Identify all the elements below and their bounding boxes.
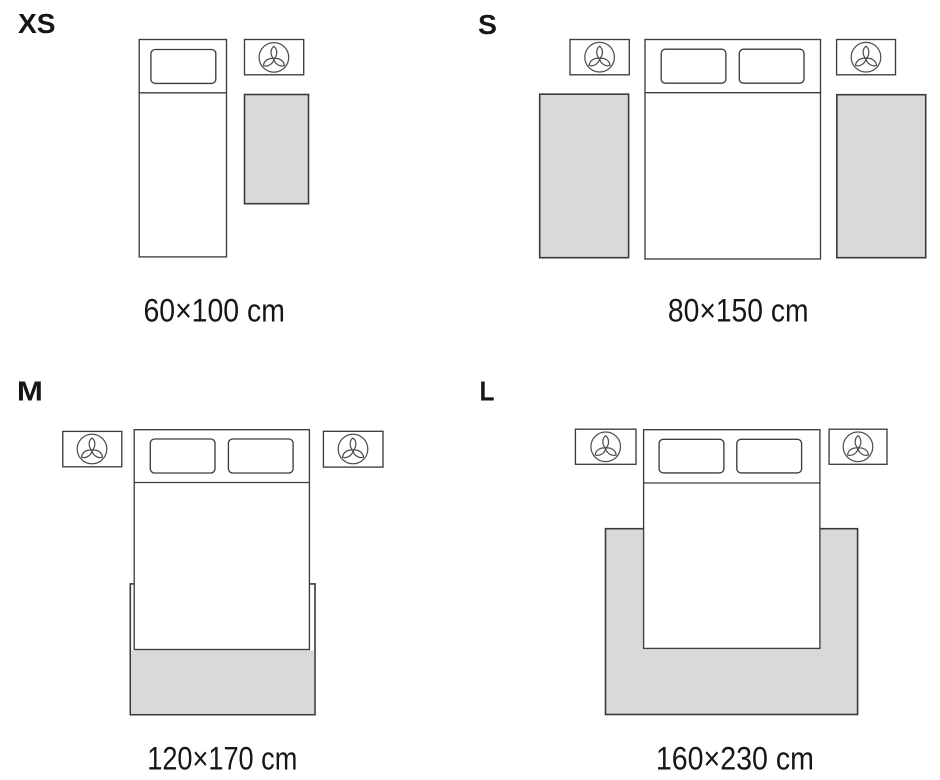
svg-text:M: M [17, 376, 43, 407]
svg-text:XS: XS [18, 8, 56, 39]
svg-text:80×150 cm: 80×150 cm [668, 293, 809, 329]
svg-text:S: S [478, 9, 497, 40]
svg-text:60×100 cm: 60×100 cm [143, 293, 285, 329]
svg-text:120×170 cm: 120×170 cm [147, 741, 297, 777]
svg-text:160×230 cm: 160×230 cm [656, 741, 814, 777]
svg-text:L: L [480, 376, 495, 407]
